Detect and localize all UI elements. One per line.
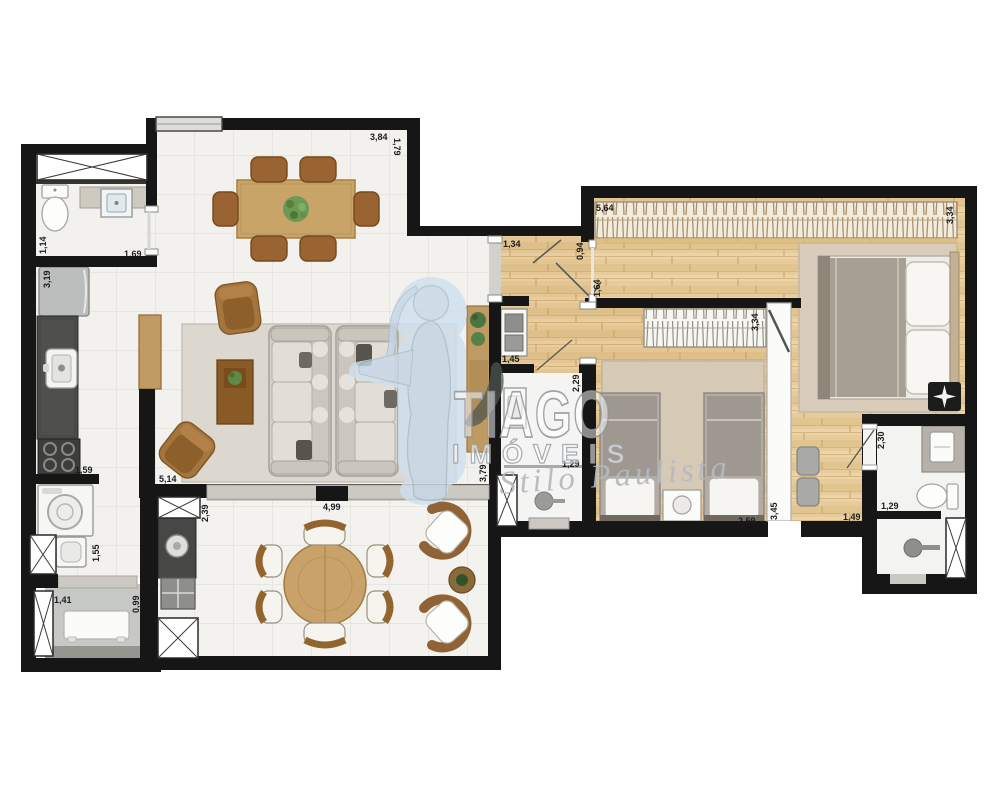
svg-text:3,84: 3,84 <box>370 132 388 142</box>
svg-text:1,64: 1,64 <box>592 279 602 297</box>
svg-text:1,59: 1,59 <box>75 465 93 475</box>
svg-text:5,64: 5,64 <box>596 203 614 213</box>
svg-text:2,30: 2,30 <box>876 431 886 449</box>
svg-text:3,19: 3,19 <box>42 270 52 288</box>
svg-text:3,34: 3,34 <box>750 313 760 331</box>
svg-text:1,29: 1,29 <box>881 501 899 511</box>
svg-text:2,59: 2,59 <box>738 516 756 526</box>
svg-text:1,41: 1,41 <box>54 595 72 605</box>
svg-text:5,14: 5,14 <box>159 474 177 484</box>
svg-text:4,99: 4,99 <box>323 502 341 512</box>
svg-text:1,14: 1,14 <box>38 236 48 254</box>
svg-text:0,94: 0,94 <box>575 242 585 260</box>
svg-text:2,39: 2,39 <box>200 504 210 522</box>
svg-text:3,34: 3,34 <box>945 206 955 224</box>
svg-text:1,55: 1,55 <box>91 544 101 562</box>
svg-text:1,45: 1,45 <box>502 354 520 364</box>
svg-text:1,49: 1,49 <box>843 512 861 522</box>
svg-text:1,69: 1,69 <box>124 249 142 259</box>
svg-text:3,45: 3,45 <box>769 502 779 520</box>
svg-text:1,79: 1,79 <box>392 138 402 156</box>
svg-text:0,99: 0,99 <box>131 595 141 613</box>
svg-text:1,34: 1,34 <box>503 239 521 249</box>
